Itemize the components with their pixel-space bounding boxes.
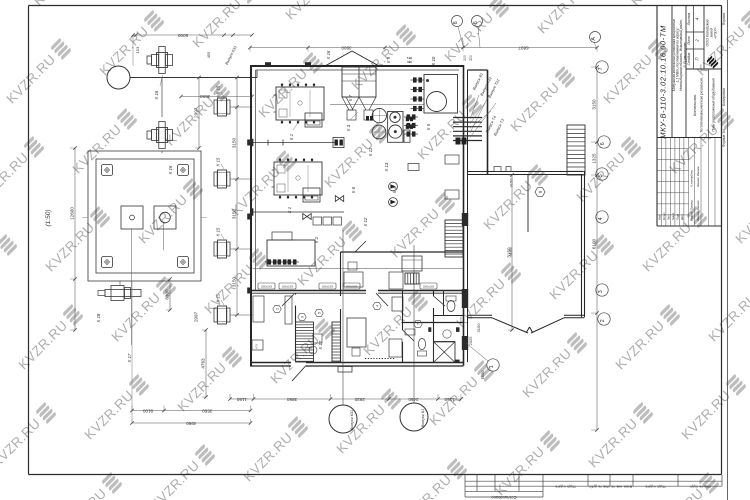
svg-text:«РЭУ»: «РЭУ» [713, 27, 717, 38]
svg-text:К 4: К 4 [392, 186, 397, 193]
svg-text:План расположения оборудования: План расположения оборудования [712, 78, 716, 131]
svg-text:2997: 2997 [194, 311, 199, 322]
svg-text:8: 8 [453, 21, 459, 24]
svg-text:К 13: К 13 [384, 162, 389, 171]
svg-text:К 16: К 16 [168, 165, 173, 174]
svg-text:К 7: К 7 [406, 56, 411, 63]
svg-text:Дата: Дата [680, 214, 684, 220]
svg-text:Иванов: Иванов [696, 211, 700, 221]
svg-text:К 10: К 10 [431, 56, 436, 65]
svg-text:7: 7 [598, 67, 604, 70]
svg-text:3: 3 [598, 290, 604, 293]
svg-text:К 9: К 9 [386, 56, 391, 63]
svg-text:К 2: К 2 [314, 236, 319, 243]
svg-text:Лист: Лист [666, 214, 670, 220]
svg-text:А: А [591, 37, 597, 41]
svg-text:1325: 1325 [592, 153, 597, 164]
svg-text:К 6: К 6 [351, 186, 356, 193]
svg-text:1500: 1500 [480, 370, 485, 380]
svg-text:Разраб.: Разраб. [690, 211, 694, 221]
svg-text:К 1: К 1 [289, 133, 294, 140]
svg-text:Иванов: Иванов [696, 177, 700, 187]
svg-text:1500х1500: 1500х1500 [423, 287, 435, 289]
svg-text:300: 300 [469, 55, 473, 61]
svg-text:2: 2 [600, 319, 606, 322]
svg-text:Подп. и дата: Подп. и дата [645, 484, 665, 488]
svg-text:7: 7 [417, 323, 421, 325]
svg-text:К 15: К 15 [216, 85, 221, 94]
svg-text:К 3: К 3 [346, 124, 351, 131]
svg-text:Лист: Лист [687, 36, 691, 46]
svg-text:2025: 2025 [468, 336, 473, 346]
svg-text:Согласовано: Согласовано [491, 495, 517, 500]
svg-text:4: 4 [598, 217, 604, 220]
svg-text:3150: 3150 [232, 208, 237, 219]
svg-text:9100: 9100 [142, 409, 153, 414]
svg-text:Формат А4: Формат А4 [722, 129, 726, 147]
svg-text:4950: 4950 [186, 421, 197, 426]
svg-text:5: 5 [318, 312, 322, 314]
svg-text:Взам. инв. №: Взам. инв. № [611, 484, 632, 488]
svg-text:Иванов: Иванов [696, 166, 700, 176]
svg-text:3150: 3150 [476, 323, 481, 333]
svg-text:Тепломеханические решения.: Тепломеханические решения. [699, 77, 704, 133]
svg-text:2450: 2450 [408, 397, 419, 402]
svg-text:3150: 3150 [232, 276, 237, 287]
svg-text:12600: 12600 [70, 207, 75, 220]
svg-text:К 17: К 17 [127, 353, 132, 362]
svg-text:3900: 3900 [341, 46, 352, 51]
svg-text:1500х1500: 1500х1500 [261, 287, 273, 289]
svg-text:К 11: К 11 [368, 147, 373, 156]
svg-text:6: 6 [473, 21, 479, 24]
svg-text:3150: 3150 [232, 137, 237, 148]
svg-text:АГВ: АГВ [256, 344, 259, 349]
svg-text:1150: 1150 [236, 397, 246, 402]
svg-text:Котельная.: Котельная. [692, 94, 697, 116]
svg-text:3850: 3850 [286, 397, 297, 402]
svg-text:К 15: К 15 [216, 227, 221, 236]
svg-text:МКУ-В-110-3.02.10.16.00-ТМ: МКУ-В-110-3.02.10.16.00-ТМ [659, 25, 668, 139]
svg-text:Подп: Подп [675, 213, 679, 220]
svg-text:3150: 3150 [592, 99, 597, 110]
svg-text:5: 5 [598, 174, 604, 177]
svg-text:2920: 2920 [354, 397, 365, 402]
svg-text:3550: 3550 [202, 409, 213, 414]
svg-text:5000: 5000 [177, 33, 188, 38]
svg-text:1500х1500: 1500х1500 [282, 287, 294, 289]
svg-text:К 15: К 15 [216, 293, 221, 302]
svg-text:К 18: К 18 [96, 313, 101, 322]
svg-text:К 15: К 15 [216, 157, 221, 166]
svg-text:6100: 6100 [592, 238, 597, 249]
svg-text:Выпуск К31: Выпуск К31 [350, 410, 354, 431]
svg-text:455: 455 [206, 51, 211, 58]
svg-text:3550: 3550 [199, 94, 210, 99]
svg-text:Выпуск К1: Выпуск К1 [421, 409, 425, 427]
svg-text:Иванов: Иванов [696, 200, 700, 210]
svg-text:Кол.уч: Кол.уч [662, 212, 666, 220]
svg-text:К 16: К 16 [326, 50, 331, 59]
svg-text:К 1: К 1 [287, 206, 292, 213]
svg-text:(1:50): (1:50) [45, 210, 52, 227]
svg-text:Стадия: Стадия [687, 52, 691, 65]
svg-text:Формат: Формат [722, 12, 726, 25]
svg-text:153: 153 [135, 46, 140, 53]
svg-text:Провер.: Провер. [690, 199, 694, 210]
svg-text:2: 2 [276, 308, 280, 310]
svg-text:К 5: К 5 [426, 123, 431, 130]
svg-text:1: 1 [489, 365, 495, 368]
svg-text:№док: №док [672, 212, 675, 220]
svg-text:Инв. № подл.: Инв. № подл. [689, 484, 710, 488]
svg-text:3150: 3150 [509, 178, 514, 188]
svg-text:1150: 1150 [444, 397, 454, 402]
svg-text:4763: 4763 [201, 358, 206, 369]
svg-text:К 7: К 7 [348, 94, 353, 101]
svg-text:Подп. и дата: Подп. и дата [555, 484, 575, 488]
svg-text:К 12: К 12 [363, 217, 368, 226]
svg-text:2997: 2997 [194, 107, 199, 118]
svg-text:Копировал: Копировал [722, 88, 726, 106]
svg-text:6300: 6300 [165, 289, 170, 300]
svg-text:6897: 6897 [518, 46, 529, 51]
svg-text:Утв.: Утв. [690, 169, 694, 176]
svg-text:1500х1500: 1500х1500 [322, 287, 334, 289]
svg-text:200: 200 [463, 55, 467, 61]
svg-text:К 16: К 16 [154, 90, 159, 99]
svg-text:Инв. № дубл.: Инв. № дубл. [588, 484, 609, 488]
svg-text:Изм: Изм [658, 215, 662, 220]
svg-text:3: 3 [301, 316, 305, 318]
svg-text:4: 4 [376, 305, 380, 307]
svg-text:6: 6 [600, 142, 606, 145]
svg-text:Листов: Листов [687, 13, 691, 27]
svg-text:3150: 3150 [508, 247, 513, 257]
